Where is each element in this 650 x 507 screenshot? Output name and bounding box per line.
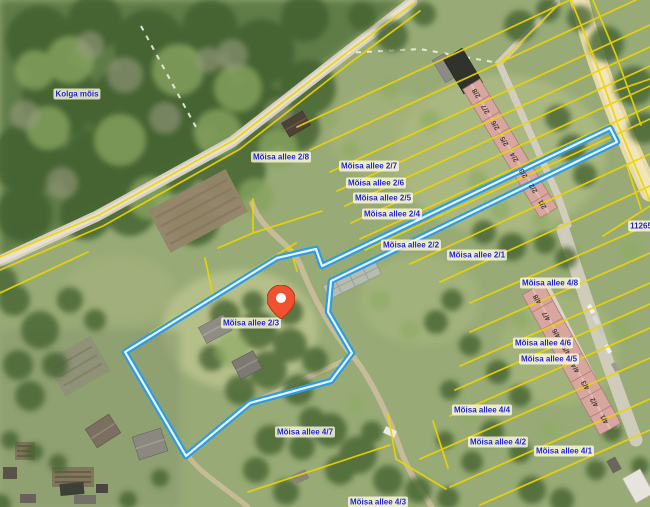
map-label-moisa-allee-2-8[interactable]: Mõisa allee 2/8: [251, 152, 311, 163]
map-label-moisa-allee-2-1[interactable]: Mõisa allee 2/1: [447, 250, 507, 261]
map-label-moisa-allee-2-2[interactable]: Mõisa allee 2/2: [381, 240, 441, 251]
map-label-moisa-allee-2-4[interactable]: Mõisa allee 2/4: [362, 209, 422, 220]
map-label-moisa-allee-4-4[interactable]: Mõisa allee 4/4: [452, 405, 512, 416]
map-label-moisa-allee-4-8[interactable]: Mõisa allee 4/8: [520, 278, 580, 289]
map-label-moisa-allee-4-1[interactable]: Mõisa allee 4/1: [534, 446, 594, 457]
map-label-kolga-mois: Kolga mõis: [53, 89, 100, 100]
satellite-map-canvas[interactable]: Kolga mõis Mõisa allee 2/8 Mõisa allee 2…: [0, 0, 650, 507]
map-label-moisa-allee-4-3[interactable]: Mõisa allee 4/3: [348, 497, 408, 507]
map-label-moisa-allee-2-7[interactable]: Mõisa allee 2/7: [339, 161, 399, 172]
map-label-moisa-allee-4-6[interactable]: Mõisa allee 4/6: [513, 338, 573, 349]
map-label-moisa-allee-2-6[interactable]: Mõisa allee 2/6: [346, 178, 406, 189]
map-label-moisa-allee-2-3[interactable]: Mõisa allee 2/3: [221, 318, 281, 329]
location-pin-icon[interactable]: [267, 285, 295, 319]
map-label-cadastral-11265[interactable]: 11265: [628, 221, 650, 232]
map-label-moisa-allee-2-5[interactable]: Mõisa allee 2/5: [353, 193, 413, 204]
map-label-moisa-allee-4-7[interactable]: Mõisa allee 4/7: [275, 427, 335, 438]
map-label-moisa-allee-4-5[interactable]: Mõisa allee 4/5: [519, 354, 579, 365]
map-label-moisa-allee-4-2[interactable]: Mõisa allee 4/2: [468, 437, 528, 448]
